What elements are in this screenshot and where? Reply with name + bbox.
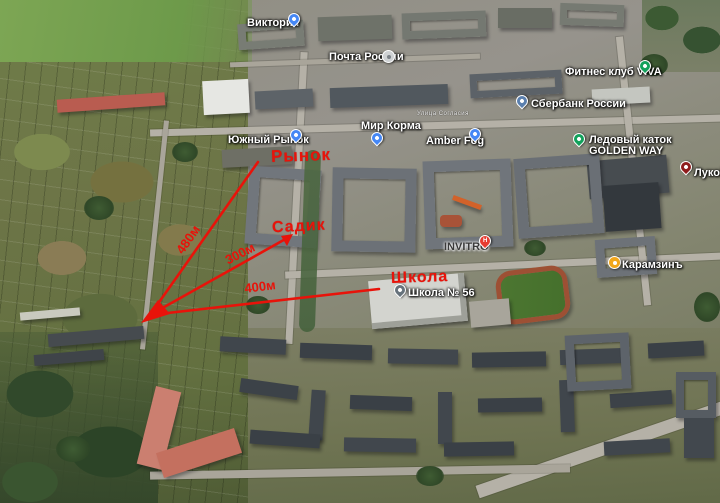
building-block: [478, 397, 542, 412]
tree-cluster: [694, 292, 720, 322]
courtyard-building: [595, 236, 658, 278]
building-block: [472, 351, 546, 367]
building-block: [318, 15, 393, 42]
icon-glyph: [387, 55, 391, 59]
building-block: [560, 3, 625, 27]
poi-label-karamzin[interactable]: Карамзинъ: [622, 259, 683, 271]
courtyard-building: [513, 153, 604, 239]
poi-label-golden-way[interactable]: GOLDEN WAY: [589, 145, 663, 157]
building-block: [469, 70, 562, 99]
building-block: [498, 8, 552, 28]
poi-label-mir-korma[interactable]: Мир Корма: [361, 120, 421, 132]
building-block: [350, 395, 412, 411]
annotation-school: Школа: [391, 268, 449, 288]
poi-label-lukoil[interactable]: Лукой: [694, 167, 720, 179]
restaurant-icon[interactable]: [608, 256, 621, 269]
poi-label-sberbank[interactable]: Сбербанк России: [531, 98, 626, 110]
parking-lot: [602, 182, 661, 232]
tree-cluster: [524, 240, 546, 256]
pin-glyph: [576, 136, 582, 142]
building-block: [402, 11, 487, 40]
tree-cluster: [246, 296, 270, 314]
pin-glyph: [642, 63, 648, 69]
construction-site: [440, 215, 462, 227]
building-block: [684, 418, 714, 458]
pin-glyph: [291, 16, 297, 22]
satellite-map-canvas[interactable]: Рынок Садик Школа 480м 300м 400м Виктори…: [0, 0, 720, 503]
pin-glyph: [397, 287, 403, 293]
annotation-kindergarten: Садик: [272, 217, 327, 238]
tree-cluster: [416, 466, 444, 486]
pin-glyph: [293, 132, 299, 138]
pin-glyph: [374, 135, 380, 141]
building-block: [388, 348, 458, 364]
annotation-market: Рынок: [271, 145, 332, 167]
post-office-icon[interactable]: [382, 50, 395, 63]
school-plaza: [469, 298, 511, 327]
tree-cluster: [172, 142, 198, 162]
building-block: [255, 88, 314, 109]
building-store-victoria: [202, 79, 250, 115]
tree-cluster: [84, 196, 114, 220]
building-block: [444, 441, 514, 456]
building-block: [438, 392, 452, 444]
street-label: Улица Согласия: [417, 111, 469, 117]
pin-glyph: H: [483, 238, 487, 244]
courtyard-building: [565, 332, 632, 391]
building-block: [330, 84, 449, 108]
terrain-green-field: [0, 0, 252, 62]
tree-cluster: [56, 436, 90, 462]
pin-glyph: [472, 131, 478, 137]
building-block: [648, 341, 705, 359]
building-block: [344, 437, 416, 452]
icon-glyph: [613, 261, 617, 265]
poi-label-school-56[interactable]: Школа № 56: [408, 287, 475, 299]
pin-glyph: [519, 98, 525, 104]
courtyard-building: [676, 372, 716, 418]
pin-glyph: [683, 164, 689, 170]
building-block: [300, 343, 372, 361]
courtyard-building: [331, 167, 416, 252]
